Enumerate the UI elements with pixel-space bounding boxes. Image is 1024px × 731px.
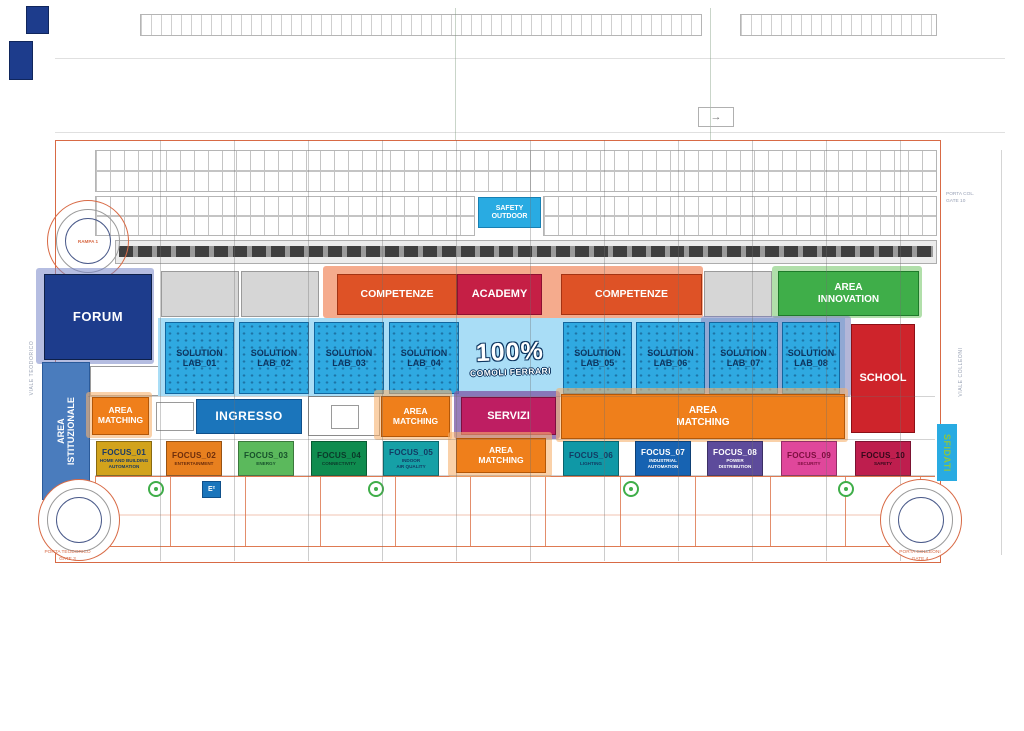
zone-solution-lab-06: SOLUTION LAB_06: [636, 322, 705, 394]
stand-block-1: [161, 271, 239, 317]
zone-solution-lab-01: SOLUTION LAB_01: [165, 322, 234, 394]
zone-solution-lab-03: SOLUTION LAB_03: [314, 322, 384, 394]
center-brand-logo: 100% COMOLI FERRARI: [457, 318, 564, 396]
focus-03-id: FOCUS_03: [244, 451, 288, 460]
security-gate-detail: [331, 405, 359, 429]
charging-station-icon-2: [368, 481, 384, 497]
station-dot: [154, 487, 158, 491]
zone-servizi: SERVIZI: [461, 397, 556, 435]
stall-row-2-left: [95, 196, 475, 236]
ingresso-label: INGRESSO: [215, 410, 282, 423]
charging-station-icon-4: [838, 481, 854, 497]
direction-arrow-icon: →: [698, 107, 734, 127]
structural-hline-3: [95, 475, 935, 476]
focus-05-id: FOCUS_05: [389, 448, 433, 457]
zone-focus-05: FOCUS_05INDOOR AIR QUALITY: [383, 441, 439, 476]
floor-plan-canvas: → VIALE TEODORICO VIALE COLLEONI PORTA C…: [0, 0, 1024, 731]
zone-solution-lab-05: SOLUTION LAB_05: [563, 322, 632, 394]
zone-area-matching-left: AREA MATCHING: [92, 397, 149, 435]
lab-07-label: SOLUTION LAB_07: [720, 348, 767, 368]
security-gate-box: [308, 396, 380, 436]
zone-area-matching-center: AREA MATCHING: [381, 396, 450, 437]
focus-07-subtitle: INDUSTRIAL AUTOMATION: [648, 458, 679, 469]
loading-dock-band: [115, 240, 937, 264]
zone-focus-06: FOCUS_06LIGHTING: [563, 441, 619, 476]
stall-row-top: [95, 150, 937, 192]
focus-10-subtitle: SAFETY: [874, 461, 892, 467]
street-name-right: VIALE COLLEONI: [958, 312, 968, 432]
gate-label-top-right: PORTA COL. GATE 10: [946, 191, 1004, 205]
brand-100-label: 100%: [475, 336, 544, 367]
stand-block-3: [704, 271, 772, 317]
zone-school: SCHOOL: [851, 324, 915, 433]
area-istituzionale-label: AREA ISTITUZIONALE: [56, 397, 76, 465]
charging-station-icon-1: [148, 481, 164, 497]
area-matching-right-label: AREA MATCHING: [676, 405, 729, 427]
parking-strip-left: [140, 14, 702, 36]
zone-solution-lab-04: SOLUTION LAB_04: [389, 322, 459, 394]
focus-01-id: FOCUS_01: [102, 448, 146, 457]
focus-02-id: FOCUS_02: [172, 451, 216, 460]
charging-station-icon-3: [623, 481, 639, 497]
zone-competenze-right: COMPETENZE: [561, 274, 702, 315]
stand-block-2: [241, 271, 319, 317]
zone-focus-02: FOCUS_02ENTERTAINMENT: [166, 441, 222, 476]
structural-hline-2: [88, 439, 935, 440]
e2-station: E²: [202, 481, 221, 498]
zone-focus-09: FOCUS_09SECURITY: [781, 441, 837, 476]
servizi-label: SERVIZI: [487, 410, 530, 422]
outbuilding-north-1: [26, 6, 49, 34]
zone-focus-01: FOCUS_01HOME AND BUILDING AUTOMATION: [96, 441, 152, 476]
loading-dock-segments: [119, 246, 933, 257]
structural-hline-1: [88, 396, 935, 397]
zone-area-innovation: AREA INNOVATION: [778, 271, 919, 316]
area-matching-center-label: AREA MATCHING: [393, 407, 438, 426]
zone-competenze-left: COMPETENZE: [337, 274, 457, 315]
lab-04-label: SOLUTION LAB_04: [401, 348, 448, 368]
zone-solution-lab-07: SOLUTION LAB_07: [709, 322, 778, 394]
road-line-mid: [55, 132, 1005, 133]
focus-05-subtitle: INDOOR AIR QUALITY: [396, 458, 425, 469]
focus-06-subtitle: LIGHTING: [580, 461, 602, 467]
focus-04-id: FOCUS_04: [317, 451, 361, 460]
school-label: SCHOOL: [859, 372, 906, 384]
area-matching-bottom-label: AREA MATCHING: [478, 446, 523, 465]
zone-safety-outdoor-label: SAFETY OUTDOOR: [492, 205, 528, 221]
lab-01-label: SOLUTION LAB_01: [176, 348, 223, 368]
focus-09-subtitle: SECURITY: [797, 461, 820, 467]
site-boundary-right: [1001, 150, 1002, 555]
stall-row-2-right: [543, 196, 937, 236]
station-dot: [374, 487, 378, 491]
competenze-left-label: COMPETENZE: [361, 289, 434, 301]
station-dot: [844, 487, 848, 491]
road-line-top: [55, 58, 1005, 59]
forum-label: FORUM: [73, 310, 123, 325]
focus-07-id: FOCUS_07: [641, 448, 685, 457]
lower-rooms-strip: [95, 476, 935, 547]
focus-08-subtitle: POWER DISTRIBUTION: [719, 458, 752, 469]
parking-strip-right: [740, 14, 937, 36]
zone-area-matching-right: AREA MATCHING: [561, 394, 845, 439]
zone-focus-07: FOCUS_07INDUSTRIAL AUTOMATION: [635, 441, 691, 476]
focus-03-subtitle: ENERGY: [256, 461, 275, 467]
zone-solution-lab-08: SOLUTION LAB_08: [782, 322, 840, 394]
turnstile-box: [156, 402, 194, 431]
focus-10-id: FOCUS_10: [861, 451, 905, 460]
focus-08-id: FOCUS_08: [713, 448, 757, 457]
focus-09-id: FOCUS_09: [787, 451, 831, 460]
zone-academy: ACADEMY: [457, 274, 542, 315]
focus-02-subtitle: ENTERTAINMENT: [175, 461, 214, 467]
zone-focus-03: FOCUS_03ENERGY: [238, 441, 294, 476]
zone-forum: FORUM: [44, 274, 152, 360]
focus-04-subtitle: CONNECTIVITY: [322, 461, 356, 467]
focus-06-id: FOCUS_06: [569, 451, 613, 460]
zone-solution-lab-02: SOLUTION LAB_02: [239, 322, 309, 394]
ramp-ring-inner: [898, 497, 944, 543]
lab-06-label: SOLUTION LAB_06: [647, 348, 694, 368]
axis-line-1: [455, 8, 456, 140]
outbuilding-north-2: [9, 41, 33, 80]
area-innovation-label: AREA INNOVATION: [818, 282, 879, 304]
focus-01-subtitle: HOME AND BUILDING AUTOMATION: [100, 458, 148, 469]
ramp-1-label: RAMPA 1: [78, 239, 98, 244]
academy-label: ACADEMY: [472, 288, 528, 300]
zone-safety-outdoor: SAFETY OUTDOOR: [478, 197, 541, 228]
zone-sfidati: SFIDATI: [937, 424, 957, 481]
zone-area-matching-bottom: AREA MATCHING: [456, 438, 546, 473]
area-matching-left-label: AREA MATCHING: [98, 406, 143, 425]
zone-focus-04: FOCUS_04CONNECTIVITY: [311, 441, 367, 476]
gate-label-bottom-right: PORTA COLLEONI GATE 4: [875, 549, 965, 563]
lab-03-label: SOLUTION LAB_03: [326, 348, 373, 368]
e2-label: E²: [208, 486, 215, 494]
lab-02-label: SOLUTION LAB_02: [251, 348, 298, 368]
station-dot: [629, 487, 633, 491]
lab-08-label: SOLUTION LAB_08: [788, 348, 835, 368]
brand-comoli-ferrari-label: COMOLI FERRARI: [470, 365, 551, 378]
zone-focus-08: FOCUS_08POWER DISTRIBUTION: [707, 441, 763, 476]
zone-focus-10: FOCUS_10SAFETY: [855, 441, 911, 476]
competenze-right-label: COMPETENZE: [595, 289, 668, 301]
lab-05-label: SOLUTION LAB_05: [574, 348, 621, 368]
zone-ingresso: INGRESSO: [196, 399, 302, 434]
ramp-ring-inner: [56, 497, 102, 543]
gate-label-bottom-left: PORTA TEODORICO GATE 3: [25, 549, 110, 563]
